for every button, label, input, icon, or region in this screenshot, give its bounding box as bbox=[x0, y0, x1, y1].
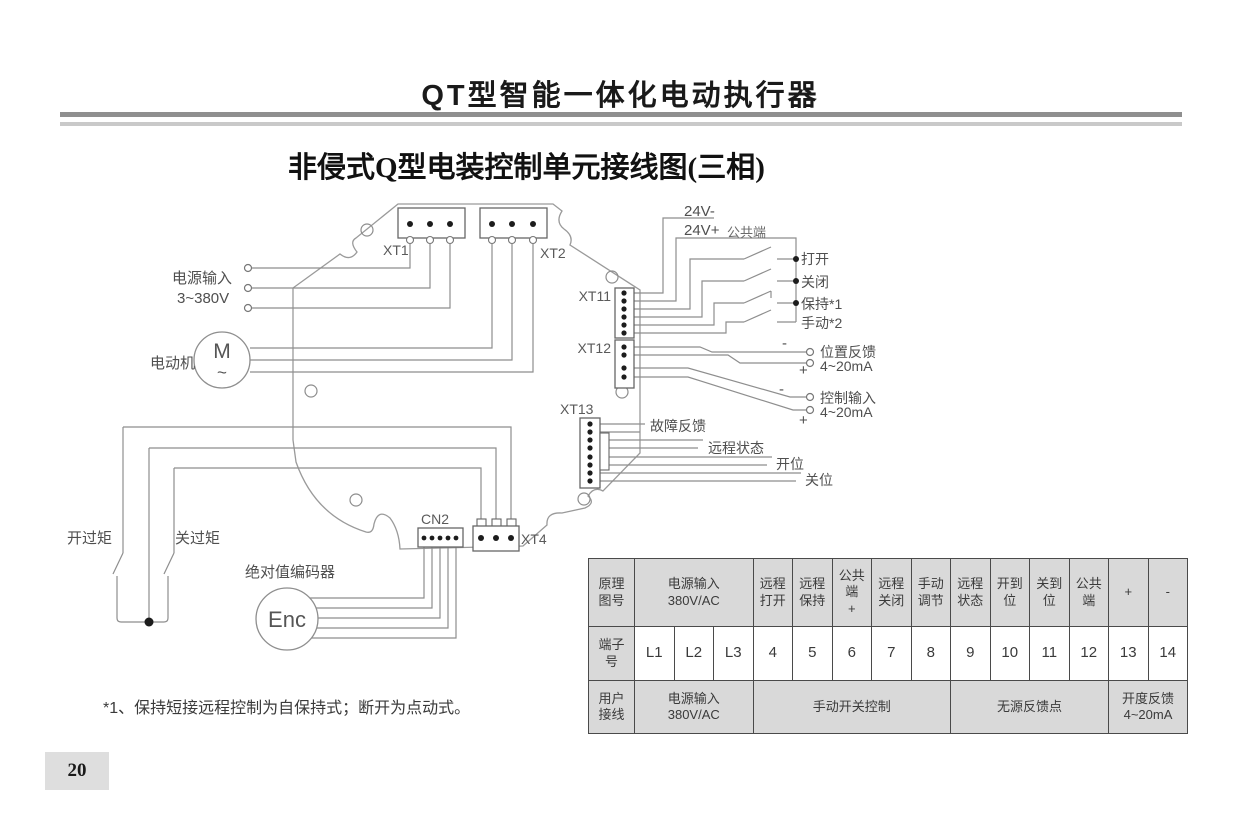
remote-status-label: 远程状态 bbox=[708, 440, 764, 456]
terminal-cell: 5 bbox=[793, 627, 833, 681]
user-cell: 无源反馈点 bbox=[951, 681, 1109, 734]
motor-letter: M bbox=[213, 340, 231, 363]
power-input-label: 电源输入 bbox=[172, 270, 232, 287]
xt13-connector bbox=[580, 418, 609, 488]
terminal-cell: 13 bbox=[1109, 627, 1149, 681]
power-voltage-label: 3~380V bbox=[177, 290, 229, 307]
remote-close-label: 关闭 bbox=[801, 274, 829, 290]
terminal-cell: L3 bbox=[714, 627, 754, 681]
header-cell: 手动 调节 bbox=[911, 559, 951, 627]
encoder-symbol: Enc bbox=[256, 588, 318, 650]
xt12-label: XT12 bbox=[578, 340, 612, 356]
header-cell: 开到 位 bbox=[990, 559, 1030, 627]
xt12-connector bbox=[615, 340, 634, 388]
row-label: 用户 接线 bbox=[589, 681, 635, 734]
motor-label: 电动机 bbox=[150, 355, 195, 372]
close-torque-label: 关过矩 bbox=[175, 530, 220, 547]
row-label: 原理 图号 bbox=[589, 559, 635, 627]
xt11-label: XT11 bbox=[579, 288, 612, 304]
header-cell: + bbox=[1109, 559, 1149, 627]
header-cell: 远程 保持 bbox=[793, 559, 833, 627]
terminal-cell: 4 bbox=[753, 627, 793, 681]
remote-manual-label: 手动*2 bbox=[801, 315, 842, 331]
terminal-cell: L1 bbox=[635, 627, 675, 681]
user-cell: 手动开关控制 bbox=[753, 681, 951, 734]
header-cell: 远程 状态 bbox=[951, 559, 991, 627]
motor-symbol: M ~ bbox=[194, 332, 250, 388]
terminal-table: 原理 图号 电源输入 380V/AC 远程 打开 远程 保持 公共 端 + 远程… bbox=[588, 558, 1188, 734]
control-input-minus: - bbox=[779, 381, 784, 398]
header-cell: 公共 端 + bbox=[832, 559, 872, 627]
table-row-terminals: 端子 号 L1 L2 L3 4 5 6 7 8 9 10 11 12 13 14 bbox=[589, 627, 1188, 681]
page-number: 20 bbox=[45, 752, 109, 790]
terminal-cell: 14 bbox=[1148, 627, 1188, 681]
terminal-cell: 6 bbox=[832, 627, 872, 681]
user-cell: 开度反馈 4~20mA bbox=[1109, 681, 1188, 734]
open-torque-label: 开过矩 bbox=[67, 530, 112, 547]
fault-feedback-label: 故障反馈 bbox=[650, 418, 706, 434]
table-row-user-wiring: 用户 接线 电源输入 380V/AC 手动开关控制 无源反馈点 开度反馈 4~2… bbox=[589, 681, 1188, 734]
encoder-letters: Enc bbox=[268, 607, 306, 632]
open-position-label: 开位 bbox=[776, 456, 804, 472]
close-position-label: 关位 bbox=[805, 472, 833, 488]
header-cell: - bbox=[1148, 559, 1188, 627]
motor-wave: ~ bbox=[217, 363, 227, 382]
housing-outline bbox=[293, 204, 640, 549]
xt4-connector bbox=[473, 519, 519, 551]
terminal-cell: 7 bbox=[872, 627, 912, 681]
24v-minus-label: 24V- bbox=[684, 203, 715, 220]
position-feedback-plus: + bbox=[799, 362, 808, 379]
xt13-label: XT13 bbox=[560, 401, 594, 417]
remote-open-label: 打开 bbox=[801, 251, 829, 267]
xt11-connector bbox=[615, 288, 634, 338]
analog-terminals bbox=[245, 265, 814, 414]
xt1-label: XT1 bbox=[383, 242, 409, 258]
control-input-range: 4~20mA bbox=[820, 404, 873, 420]
table-row-schematic: 原理 图号 电源输入 380V/AC 远程 打开 远程 保持 公共 端 + 远程… bbox=[589, 559, 1188, 627]
terminal-cell: 11 bbox=[1030, 627, 1070, 681]
24v-plus-label: 24V+ bbox=[684, 222, 720, 239]
remote-hold-label: 保持*1 bbox=[801, 296, 842, 312]
manual-page: QT型智能一体化电动执行器 非侵式Q型电装控制单元接线图(三相) bbox=[0, 0, 1241, 827]
terminal-cell: 9 bbox=[951, 627, 991, 681]
header-cell: 远程 关闭 bbox=[872, 559, 912, 627]
position-feedback-range: 4~20mA bbox=[820, 358, 873, 374]
xt1-connector bbox=[398, 208, 465, 244]
xt4-label: XT4 bbox=[521, 531, 547, 547]
header-cell: 公共 端 bbox=[1069, 559, 1109, 627]
xt2-label: XT2 bbox=[540, 245, 566, 261]
header-cell: 远程 打开 bbox=[753, 559, 793, 627]
terminal-cell: 8 bbox=[911, 627, 951, 681]
user-cell: 电源输入 380V/AC bbox=[635, 681, 754, 734]
terminal-cell: 12 bbox=[1069, 627, 1109, 681]
cn2-label: CN2 bbox=[421, 511, 449, 527]
terminal-cell: L2 bbox=[674, 627, 714, 681]
xt2-connector bbox=[480, 208, 547, 244]
position-feedback-minus: - bbox=[782, 335, 787, 352]
terminal-cell: 10 bbox=[990, 627, 1030, 681]
footnote: *1、保持短接远程控制为自保持式；断开为点动式。 bbox=[103, 694, 470, 718]
header-cell: 关到 位 bbox=[1030, 559, 1070, 627]
cn2-connector bbox=[418, 528, 463, 547]
control-input-plus: + bbox=[799, 412, 808, 429]
common-terminal-label: 公共端 bbox=[727, 225, 766, 240]
row-label: 端子 号 bbox=[589, 627, 635, 681]
header-cell: 电源输入 380V/AC bbox=[635, 559, 754, 627]
encoder-label: 绝对值编码器 bbox=[245, 564, 335, 581]
